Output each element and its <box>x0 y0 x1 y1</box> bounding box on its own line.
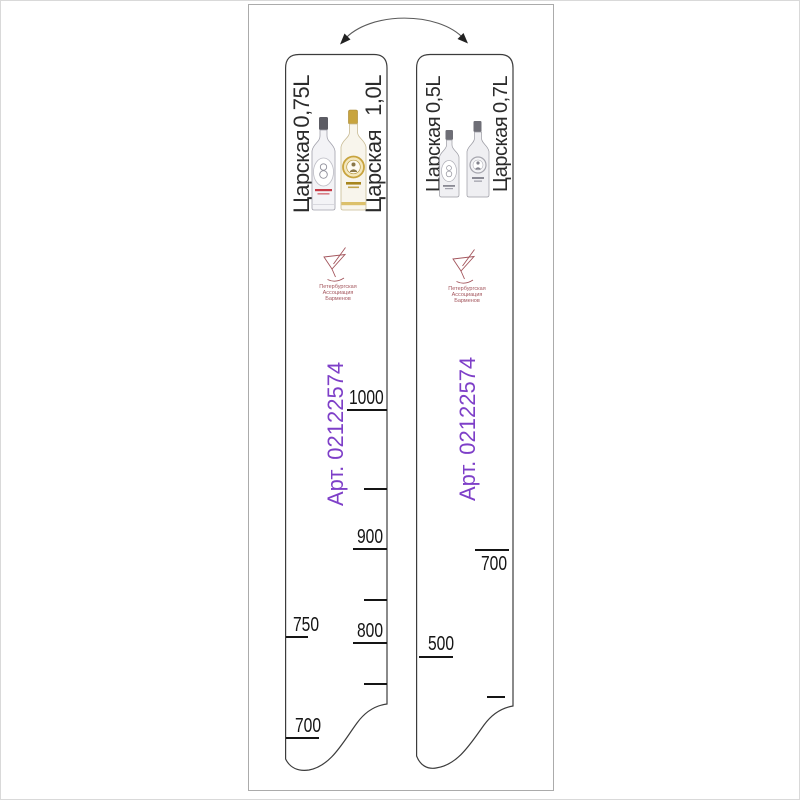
cocktail-glass-icon <box>321 247 355 284</box>
scale-value-1000: 1000 <box>349 388 384 409</box>
scale-value-800: 800 <box>357 621 383 642</box>
vodka-bottles-image-grayscale <box>435 119 493 199</box>
scale-tick <box>353 642 387 644</box>
scale-tick-minor <box>364 599 387 601</box>
scale-tick <box>475 549 509 551</box>
logo-text-line: Барменов <box>443 298 491 304</box>
volume-text: 0,7L <box>490 76 513 113</box>
scale-tick <box>286 636 308 638</box>
article-number-text: Арт. 02122574 <box>323 362 349 506</box>
article-number-text: Арт. 02122574 <box>455 357 481 501</box>
bartenders-association-logo: Петербургская Ассоциация Барменов <box>314 247 362 302</box>
scale-value-750: 750 <box>293 615 319 636</box>
scale-value-900: 900 <box>357 527 383 548</box>
product-image: Царская 0,75L Царская 1,0L <box>0 0 800 800</box>
scale-value-700: 700 <box>481 554 507 575</box>
scale-value-500: 500 <box>428 634 454 655</box>
scale-tick-minor <box>487 696 505 698</box>
article-number-label: Арт. 02122574 <box>454 355 481 501</box>
scale-tick-minor <box>364 683 387 685</box>
scale-value-700: 700 <box>295 716 321 737</box>
article-number-label: Арт. 02122574 <box>322 358 349 506</box>
scale-tick-minor <box>364 488 387 490</box>
logo-text-line: Барменов <box>314 296 362 302</box>
scale-tick <box>347 409 387 411</box>
scale-tick <box>286 737 319 739</box>
scale-tick <box>353 548 387 550</box>
flip-arrow-icon <box>334 7 474 51</box>
vodka-bottles-image <box>307 109 369 215</box>
cocktail-glass-icon <box>450 249 484 286</box>
volume-text: 0,5L <box>423 76 446 113</box>
scale-tick <box>419 656 453 658</box>
bartenders-association-logo: Петербургская Ассоциация Барменов <box>443 249 491 304</box>
